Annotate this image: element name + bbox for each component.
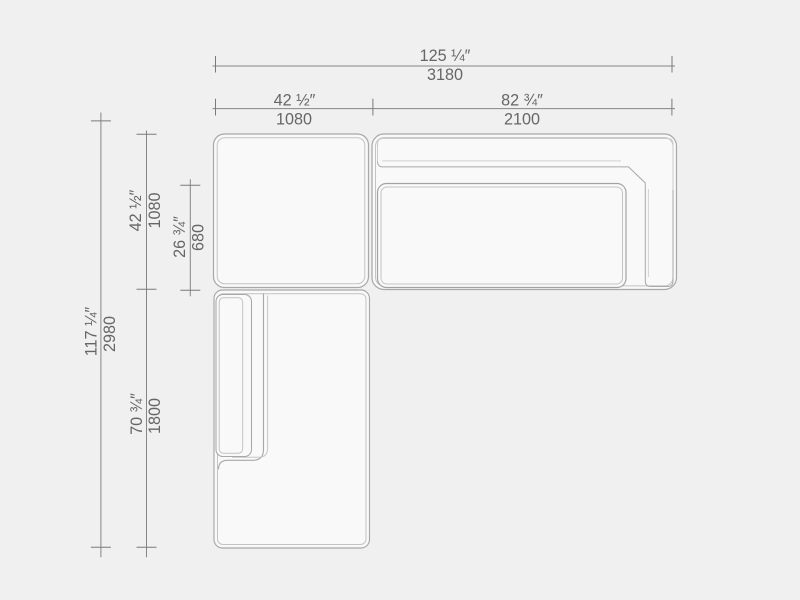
svg-text:1080: 1080: [276, 111, 312, 129]
svg-text:3180: 3180: [427, 66, 463, 84]
svg-text:680: 680: [190, 224, 208, 251]
svg-text:70 ¾″: 70 ¾″: [128, 393, 146, 435]
svg-text:1080: 1080: [146, 192, 164, 228]
svg-text:82 ¾″: 82 ¾″: [501, 92, 543, 110]
svg-text:117 ¼″: 117 ¼″: [83, 306, 101, 356]
svg-text:1800: 1800: [146, 398, 164, 434]
svg-text:42 ½″: 42 ½″: [274, 92, 316, 110]
svg-text:2980: 2980: [101, 316, 119, 352]
svg-text:42 ½″: 42 ½″: [127, 189, 145, 231]
svg-text:125 ¼″: 125 ¼″: [420, 47, 471, 65]
svg-text:2100: 2100: [504, 111, 540, 129]
svg-text:26 ¾″: 26 ¾″: [171, 216, 189, 258]
